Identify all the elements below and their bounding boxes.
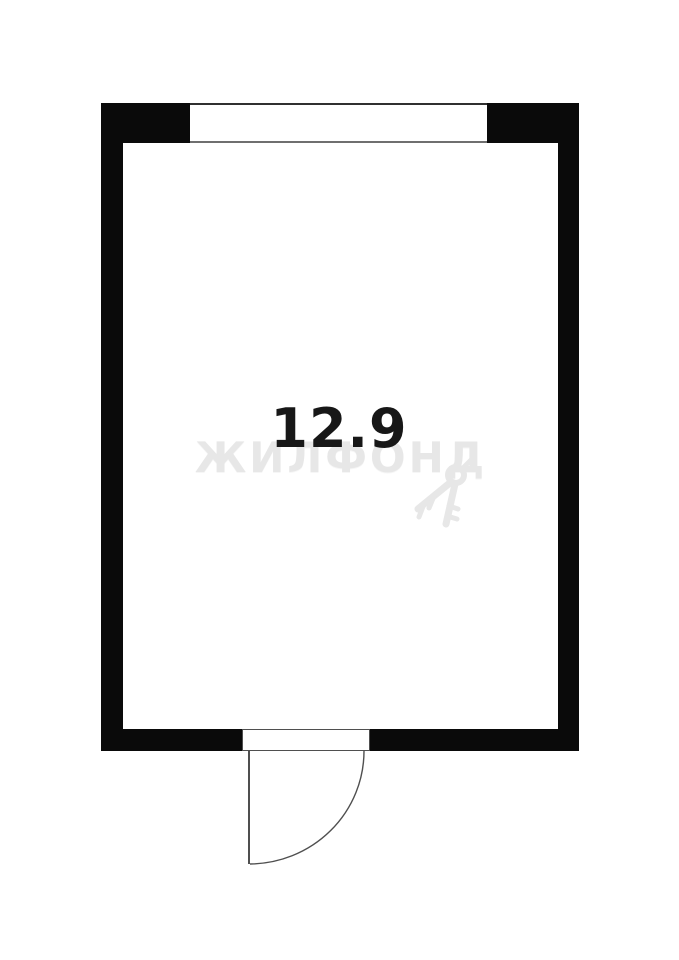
room-area-label: 12.9 bbox=[270, 400, 407, 456]
wall-bottom-right-segment bbox=[370, 729, 579, 751]
wall-left bbox=[101, 103, 123, 751]
keys-icon bbox=[394, 453, 478, 537]
wall-right bbox=[558, 103, 579, 751]
wall-bottom-left-segment bbox=[101, 729, 242, 751]
door-opening bbox=[242, 729, 370, 751]
floor-plan-canvas: ЖИЛФОНД 12.9 bbox=[0, 0, 679, 960]
door-leaf bbox=[248, 751, 250, 864]
window bbox=[190, 103, 487, 143]
